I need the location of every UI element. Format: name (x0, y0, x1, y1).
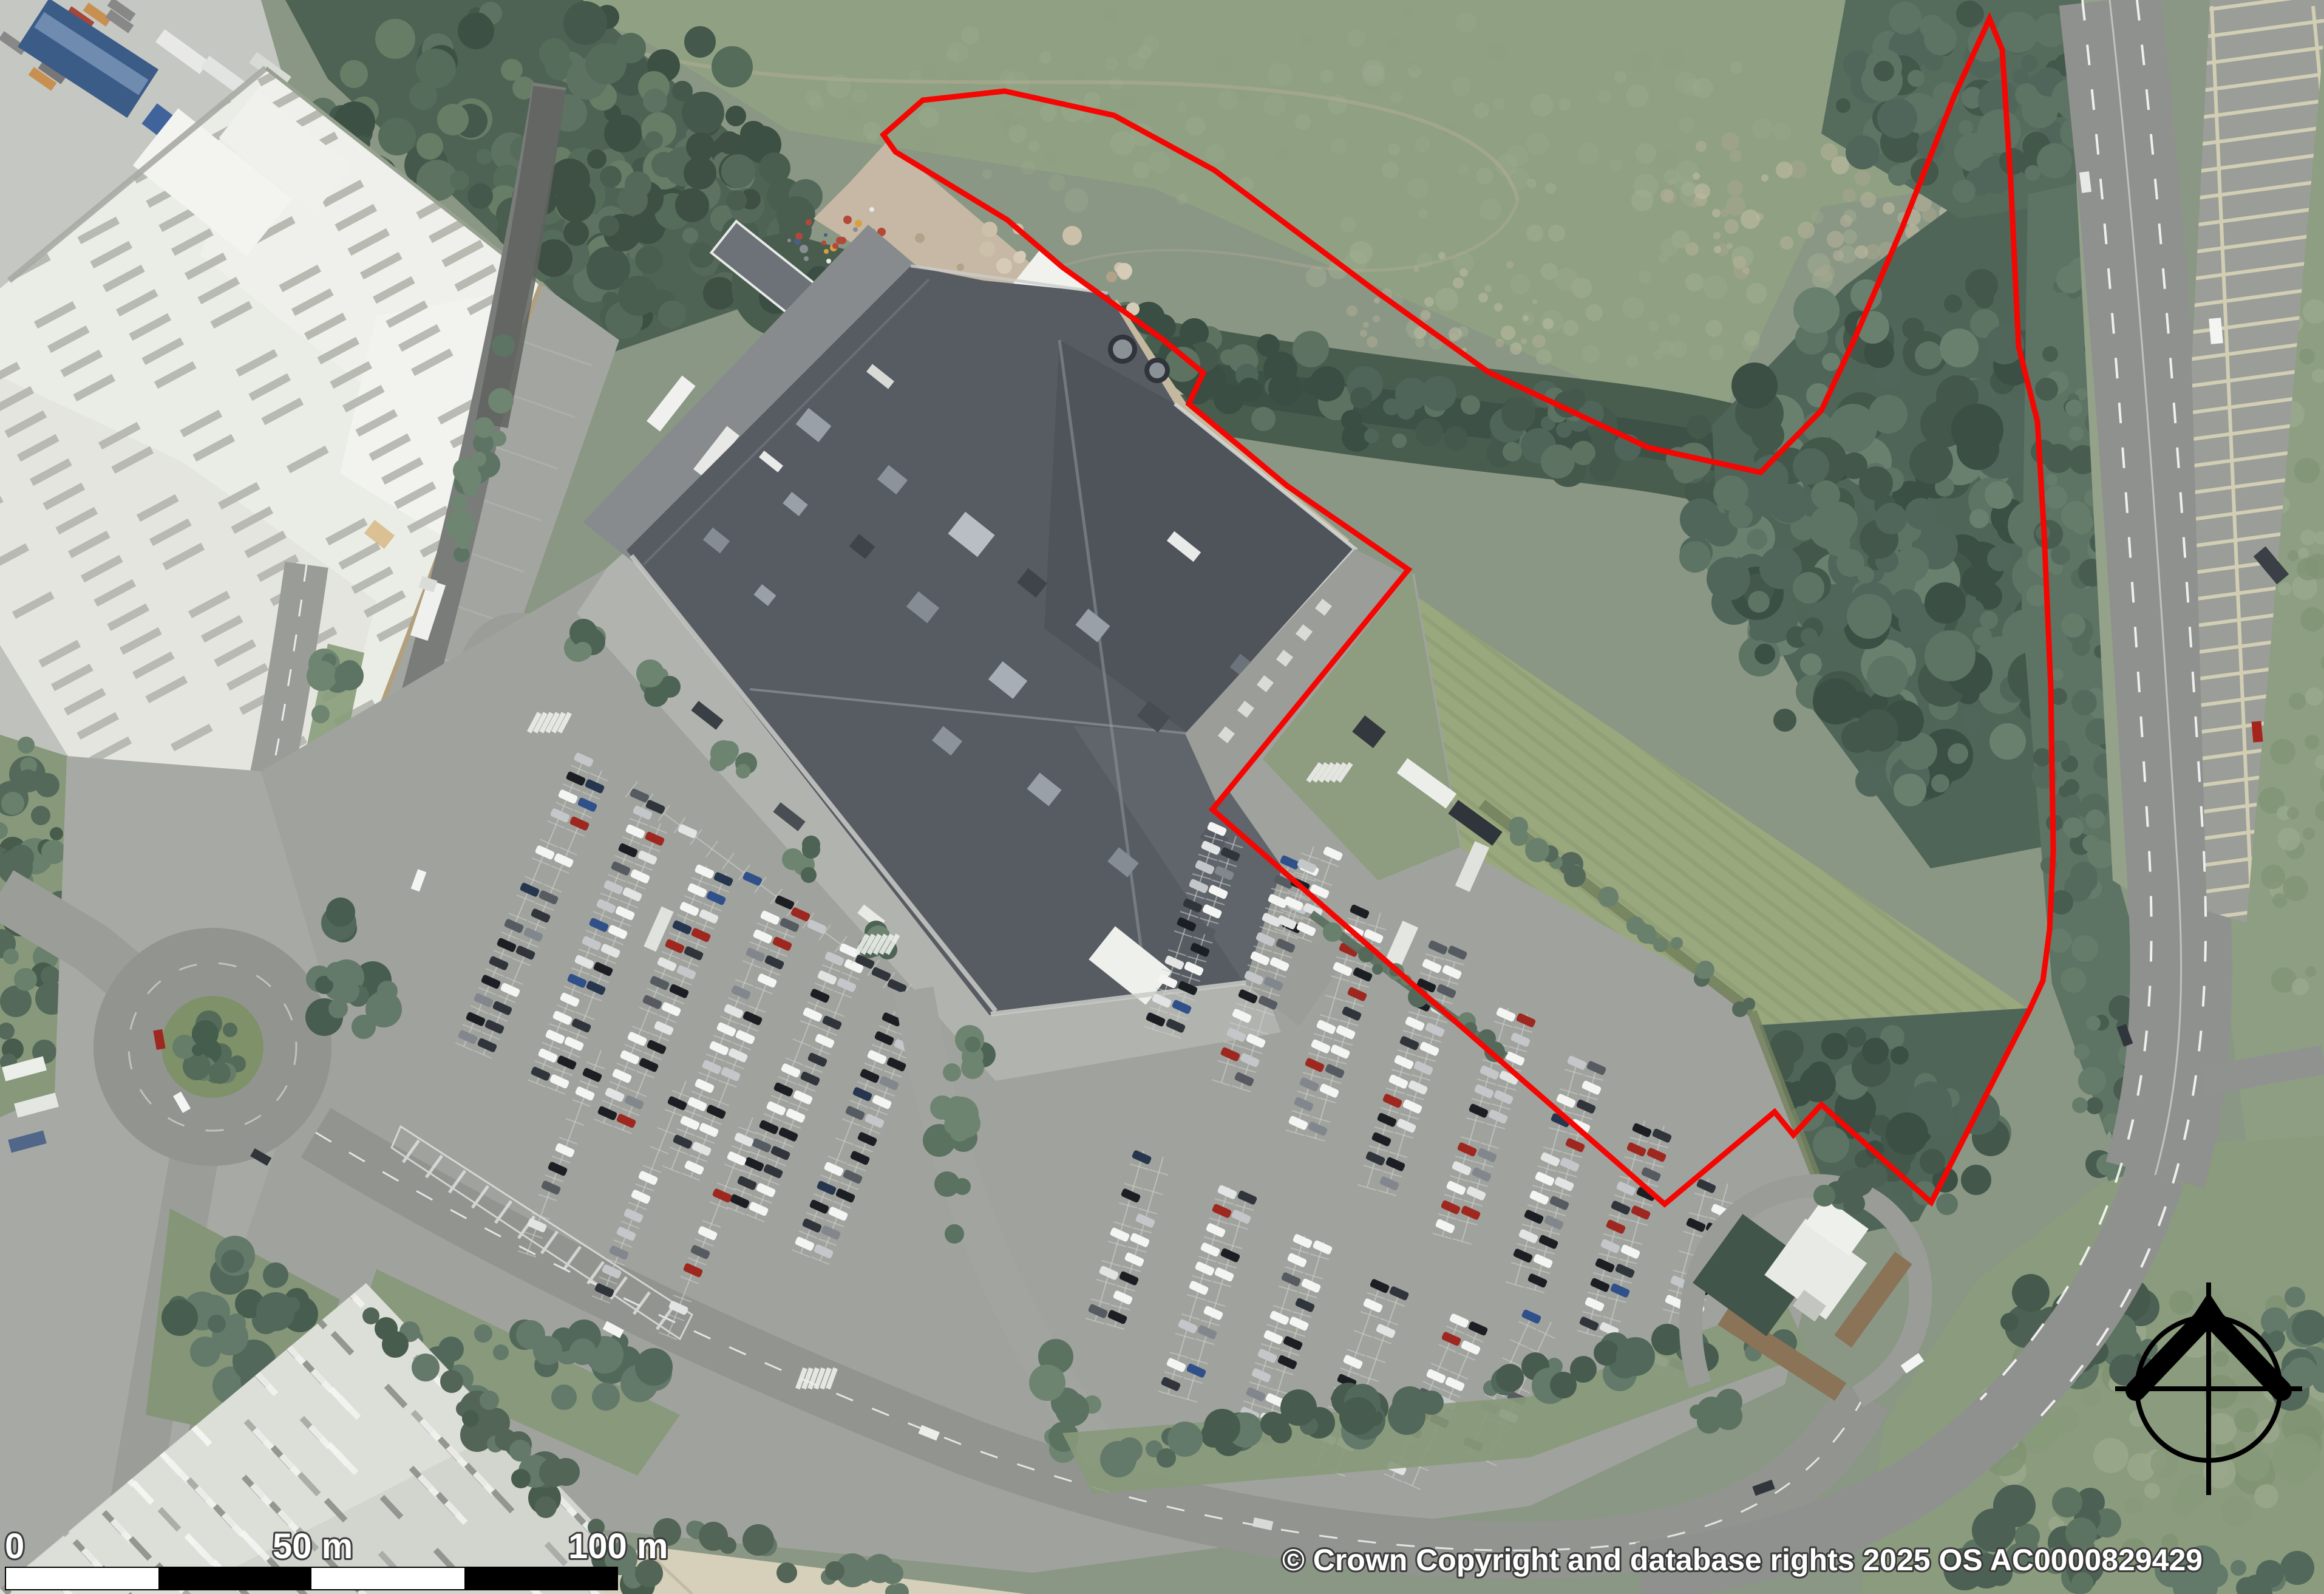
svg-text:© Crown Copyright and database: © Crown Copyright and database rights 20… (1282, 1543, 2203, 1577)
svg-text:100 m: 100 m (568, 1527, 668, 1566)
svg-text:0: 0 (5, 1527, 24, 1566)
svg-text:50 m: 50 m (273, 1527, 353, 1566)
